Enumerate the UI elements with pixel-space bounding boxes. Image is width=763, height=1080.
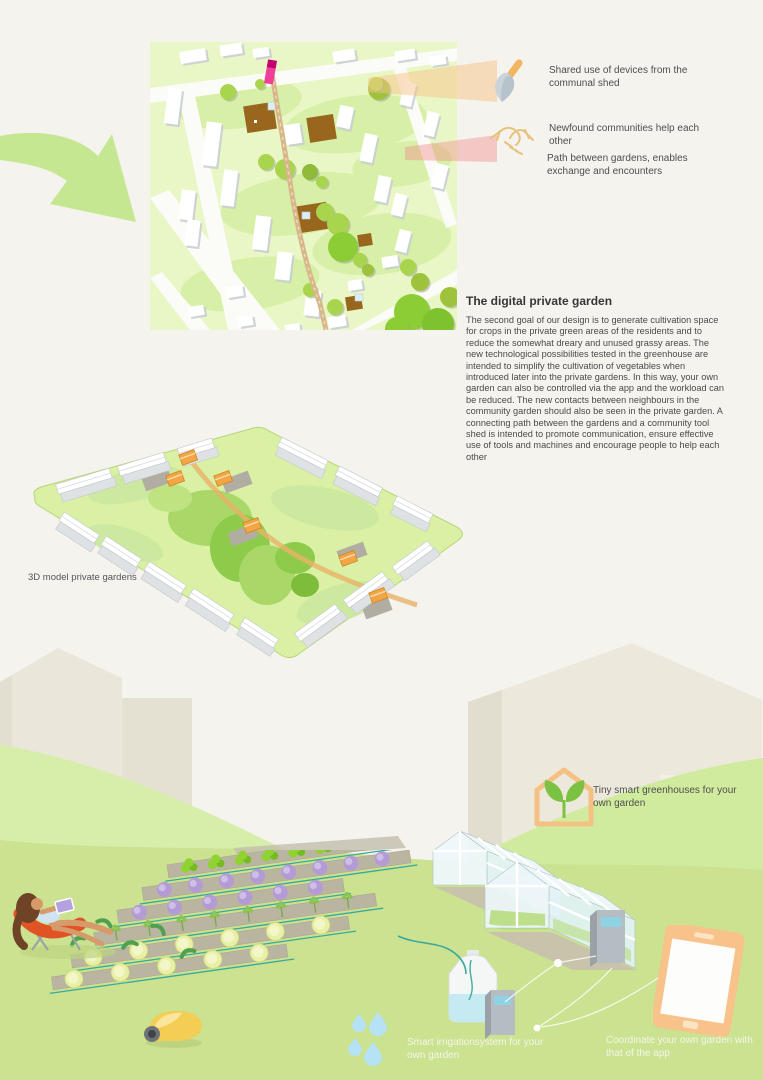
legend-item-shared-devices: Shared use of devices from the communal … [549, 64, 719, 90]
article-title: The digital private garden [466, 294, 612, 308]
model-label: 3D model private gardens [28, 572, 137, 583]
legend-item-communities: Newfound communities help each other [549, 122, 719, 148]
garden-scene: Tiny smart greenhouses for your own gard… [0, 640, 763, 1080]
highlight-beams [360, 50, 505, 170]
arrow-icon [0, 122, 150, 247]
design-poster: Shared use of devices from the communal … [0, 0, 763, 1080]
legend-item-path: Path between gardens, enables exchange a… [547, 152, 725, 178]
app-caption: Coordinate your own garden with that of … [606, 1034, 761, 1060]
article-body: The second goal of our design is to gene… [466, 315, 726, 463]
3d-model-illustration [5, 423, 475, 668]
handshake-icon [487, 118, 537, 164]
device-connections [0, 640, 763, 1080]
trowel-icon [488, 56, 534, 106]
